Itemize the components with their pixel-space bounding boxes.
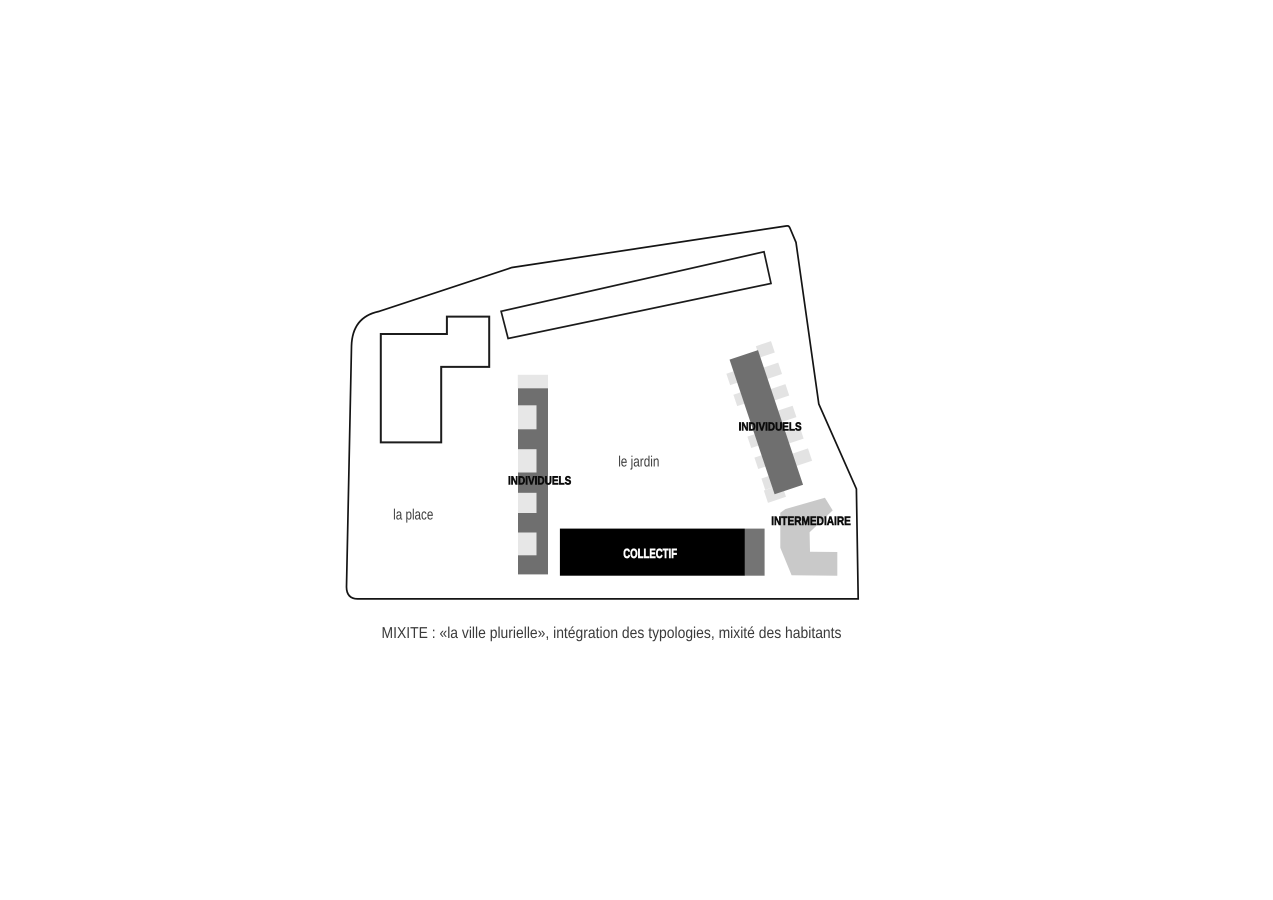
svg-text:INTERMEDIAIRE: INTERMEDIAIRE xyxy=(771,514,851,528)
svg-text:COLLECTIF: COLLECTIF xyxy=(623,546,677,561)
svg-text:INDIVIDUELS: INDIVIDUELS xyxy=(739,420,802,433)
svg-text:le jardin: le jardin xyxy=(618,454,659,471)
svg-text:MIXITE : «la ville plurielle»,: MIXITE : «la ville plurielle», intégrati… xyxy=(382,625,842,642)
svg-text:la place: la place xyxy=(393,506,433,523)
svg-text:INDIVIDUELS: INDIVIDUELS xyxy=(508,474,571,488)
